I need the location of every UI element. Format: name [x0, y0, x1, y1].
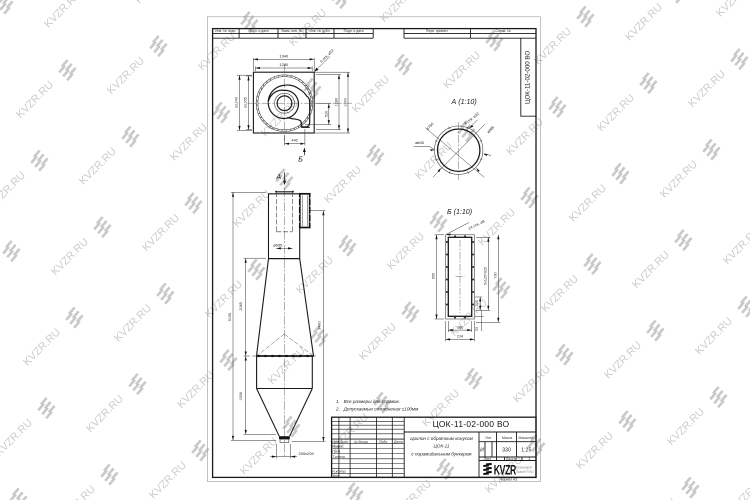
- svg-text:Кузнецкий: Кузнецкий: [516, 465, 532, 469]
- svg-text:Лист: Лист: [339, 440, 349, 444]
- svg-text:2. Допускаемые отклонения ±1: 2. Допускаемые отклонения ±100мм: [335, 407, 419, 412]
- svg-text:И: И: [480, 448, 484, 454]
- svg-text:Взам. инв. №: Взам. инв. №: [281, 29, 302, 33]
- svg-text:⌀1240: ⌀1240: [235, 97, 239, 108]
- svg-text:ЦОК-11-02-000 ВО: ЦОК-11-02-000 ВО: [525, 51, 532, 104]
- svg-text:Лист: Лист: [484, 457, 492, 461]
- svg-text:Формат А3: Формат А3: [500, 478, 517, 482]
- svg-text:Масса: Масса: [502, 436, 512, 440]
- svg-text:№ докум.: № докум.: [354, 440, 369, 444]
- svg-text:520: 520: [324, 111, 328, 117]
- svg-text:125: 125: [475, 300, 479, 306]
- svg-text:Подп.: Подп.: [379, 440, 388, 444]
- svg-text:1340: 1340: [279, 54, 289, 59]
- svg-text:1: 1: [529, 457, 531, 461]
- svg-text:Инв. № дубл.: Инв. № дубл.: [310, 29, 331, 33]
- svg-text:Н.контр.: Н.контр.: [332, 469, 346, 473]
- svg-text:5х125=625: 5х125=625: [483, 267, 487, 285]
- svg-text:Пров.: Пров.: [332, 450, 341, 454]
- svg-text:Подп. и дата: Подп. и дата: [344, 29, 364, 33]
- svg-text:1. Все размеры для справок.: 1. Все размеры для справок.: [336, 399, 400, 404]
- svg-text:Утв.: Утв.: [332, 474, 340, 478]
- svg-text:1340: 1340: [344, 98, 348, 106]
- svg-text:442: 442: [291, 138, 298, 143]
- svg-text:⌀1205: ⌀1205: [244, 97, 248, 108]
- svg-text:200х200: 200х200: [299, 451, 315, 456]
- svg-text:Б: Б: [298, 157, 303, 164]
- svg-text:695: 695: [432, 273, 436, 279]
- svg-text:3480: 3480: [317, 321, 321, 329]
- svg-text:330: 330: [502, 448, 511, 454]
- svg-text:1280: 1280: [335, 98, 339, 106]
- svg-text:1:25: 1:25: [521, 448, 531, 454]
- svg-text:5195: 5195: [228, 313, 232, 321]
- svg-text:⌀695: ⌀695: [273, 242, 283, 247]
- svg-text:KVZR: KVZR: [494, 462, 517, 478]
- svg-text:Лит.: Лит.: [485, 436, 491, 440]
- svg-text:180: 180: [457, 325, 463, 329]
- svg-text:2085: 2085: [239, 302, 243, 310]
- svg-text:Инв. № подл.: Инв. № подл.: [215, 29, 236, 33]
- svg-text:1956: 1956: [239, 392, 243, 400]
- svg-text:А: А: [275, 174, 281, 181]
- svg-text:Подп. и дата: Подп. и дата: [249, 29, 269, 33]
- svg-text:Циклон с обратным конусом: Циклон с обратным конусом: [410, 436, 473, 441]
- svg-text:Масштаб: Масштаб: [519, 436, 534, 440]
- svg-text:ЦОК-11-02-000 ВО: ЦОК-11-02-000 ВО: [433, 419, 510, 429]
- svg-text:53: 53: [475, 327, 479, 331]
- svg-text:ЦОК-11: ЦОК-11: [434, 443, 450, 448]
- svg-text:Перв. примен.: Перв. примен.: [426, 29, 449, 33]
- svg-text:⌀645: ⌀645: [415, 141, 424, 145]
- svg-text:Б (1:10): Б (1:10): [447, 208, 472, 216]
- svg-text:Т.контр.: Т.контр.: [332, 455, 345, 459]
- svg-text:730: 730: [494, 272, 498, 278]
- svg-text:с пирамидальным бункером: с пирамидальным бункером: [411, 451, 472, 456]
- svg-text:214: 214: [457, 334, 463, 338]
- svg-text:Изм.: Изм.: [332, 440, 339, 444]
- svg-text:Дата: Дата: [393, 440, 403, 444]
- svg-text:Разраб.: Разраб.: [332, 445, 344, 449]
- svg-text:А (1:10): А (1:10): [451, 98, 477, 106]
- svg-text:Листов: Листов: [506, 457, 518, 461]
- svg-text:Справ. №: Справ. №: [496, 29, 512, 33]
- svg-text:Завод РЭО: Завод РЭО: [516, 470, 534, 474]
- svg-text:1280: 1280: [279, 62, 289, 67]
